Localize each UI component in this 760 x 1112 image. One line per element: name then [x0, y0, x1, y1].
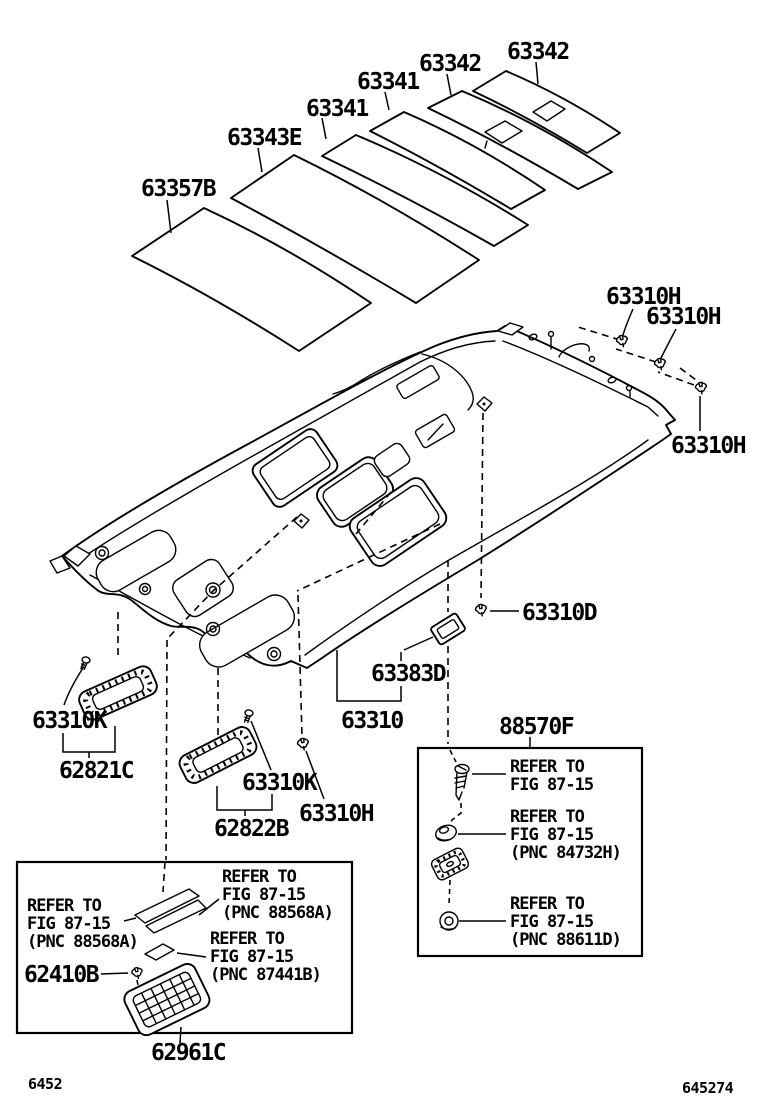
label-63310k-1[interactable]: 63310K: [32, 708, 108, 734]
label-63342-1[interactable]: 63342: [419, 51, 481, 77]
label-63310d[interactable]: 63310D: [522, 600, 597, 626]
page-code: 6452: [28, 1075, 62, 1093]
label-63310h-4[interactable]: 63310H: [299, 801, 374, 827]
label-63341-2[interactable]: 63341: [357, 69, 419, 95]
label-63310[interactable]: 63310: [341, 708, 403, 734]
note-left-3-line3: (PNC 87441B): [210, 965, 321, 985]
label-62961c[interactable]: 62961C: [151, 1040, 226, 1066]
note-right-1-line2: FIG 87-15: [510, 775, 594, 795]
note-left-1-line1: REFER TO: [27, 896, 102, 916]
note-right-3-line1: REFER TO: [510, 894, 585, 914]
roof-headlining-parts-diagram: 63357B 63343E 63341 63341 63342 63342 63…: [0, 0, 760, 1112]
nut-icon: [440, 912, 458, 930]
note-right-2-line2: FIG 87-15: [510, 825, 594, 845]
label-63310k-2[interactable]: 63310K: [242, 770, 318, 796]
note-left-3-line1: REFER TO: [210, 929, 285, 949]
figure-code: 645274: [682, 1079, 734, 1097]
note-right-2-line1: REFER TO: [510, 807, 585, 827]
label-62821c[interactable]: 62821C: [59, 758, 134, 784]
label-63342-2[interactable]: 63342: [507, 39, 569, 65]
label-63341-1[interactable]: 63341: [306, 96, 368, 122]
label-63357b[interactable]: 63357B: [141, 176, 217, 202]
label-62410b[interactable]: 62410B: [24, 962, 100, 988]
note-left-3-line2: FIG 87-15: [210, 947, 294, 967]
parts-diagram-page: 63357B 63343E 63341 63341 63342 63342 63…: [0, 0, 760, 1112]
note-left-1-line2: FIG 87-15: [27, 914, 111, 934]
label-63343e[interactable]: 63343E: [227, 125, 302, 151]
label-62822b[interactable]: 62822B: [214, 816, 290, 842]
note-left-1-line3: (PNC 88568A): [27, 932, 138, 952]
note-right-3-line3: (PNC 88611D): [510, 930, 621, 950]
label-63383d[interactable]: 63383D: [371, 661, 446, 687]
note-left-2-line1: REFER TO: [222, 867, 297, 887]
note-right-1-line1: REFER TO: [510, 757, 585, 777]
note-right-3-line2: FIG 87-15: [510, 912, 594, 932]
note-left-2-line2: FIG 87-15: [222, 885, 306, 905]
label-63310h-3[interactable]: 63310H: [671, 433, 746, 459]
label-88570f[interactable]: 88570F: [499, 714, 574, 740]
note-right-2-line3: (PNC 84732H): [510, 843, 621, 863]
label-63310h-2[interactable]: 63310H: [646, 304, 721, 330]
note-left-2-line3: (PNC 88568A): [222, 903, 333, 923]
